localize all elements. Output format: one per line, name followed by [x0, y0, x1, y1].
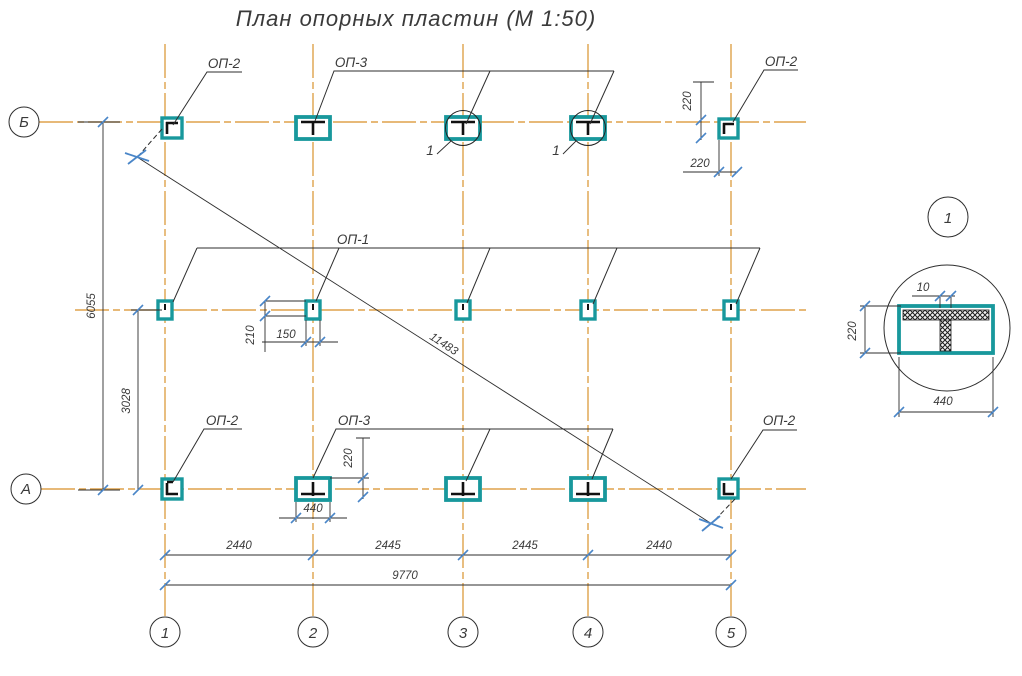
dim-span23: 2445 — [374, 540, 401, 552]
row-axis-a: А — [11, 474, 41, 504]
plate-b5 — [719, 119, 738, 138]
dim-corner-v: 220 — [682, 91, 694, 112]
callout-ref-plate3: 1 — [426, 141, 451, 158]
label-op2-top-left: ОП-2 — [208, 56, 241, 71]
row-axis-b: Б — [9, 107, 39, 137]
col-axis-bubbles: 1 2 3 4 5 — [150, 617, 746, 647]
leader-op2-top-right: ОП-2 — [733, 54, 798, 122]
leader-op2-bottom-left: ОП-2 — [173, 413, 242, 482]
label-op3-top: ОП-3 — [335, 55, 368, 70]
callout-ref-plate3-label: 1 — [426, 143, 434, 158]
dim-diagonal-label: 11483 — [427, 331, 460, 358]
col-axis-1-label: 1 — [161, 625, 169, 642]
plan-drawing: План опорных пластин (М 1:50) Б А 1 2 3 … — [0, 0, 1022, 676]
label-op2-top-right: ОП-2 — [765, 54, 798, 69]
grid-lines — [39, 44, 806, 616]
leader-op1-middle: ОП-1 — [173, 232, 760, 304]
col-axis-2-label: 2 — [308, 625, 318, 642]
dim-total-label: 9770 — [392, 570, 418, 582]
detail-view: 1 10 220 440 — [847, 197, 1010, 417]
col-axis-5-label: 5 — [727, 625, 736, 642]
dim-mid-plate-h: 210 — [245, 325, 257, 346]
dim-row-a-mid-label: 3028 — [121, 388, 133, 414]
dim-row-a-mid: 3028 — [121, 305, 162, 495]
leader-op3-top: ОП-3 — [315, 55, 614, 124]
dim-chain-spans: 2440 2445 2445 2440 — [160, 540, 736, 560]
label-op2-bottom-right: ОП-2 — [763, 413, 796, 428]
col-axis-4-label: 4 — [584, 625, 592, 642]
label-op3-bottom: ОП-3 — [338, 413, 371, 428]
detail-ref-label: 1 — [944, 210, 952, 227]
detail-web-section — [940, 320, 951, 351]
page-title: План опорных пластин (М 1:50) — [236, 6, 596, 31]
detail-dim-web: 10 — [917, 282, 930, 294]
row-axis-b-label: Б — [19, 114, 29, 131]
dim-bottom-plate-h: 220 — [343, 448, 355, 469]
detail-flange-section — [903, 310, 989, 320]
dim-diagonal: 11483 — [125, 129, 735, 531]
dim-span34: 2445 — [511, 540, 538, 552]
dim-total-width: 9770 — [160, 570, 736, 590]
plates-row-b — [162, 111, 738, 146]
label-op1: ОП-1 — [337, 232, 369, 247]
leader-op2-bottom-right: ОП-2 — [731, 413, 797, 479]
plate-b1 — [162, 118, 182, 138]
detail-dim-width: 440 — [933, 396, 953, 408]
callout-ref-plate4-label: 1 — [552, 143, 560, 158]
dim-corner-h: 220 — [689, 158, 710, 170]
dim-bottom-plate-w: 440 — [303, 503, 323, 515]
dim-rows-total-label: 6055 — [86, 293, 98, 319]
callout-ref-plate4: 1 — [552, 141, 576, 158]
leader-op2-top-left: ОП-2 — [173, 56, 242, 125]
dim-mid-plate-w: 150 — [276, 329, 296, 341]
row-axis-a-label: А — [20, 481, 31, 498]
drawing-canvas: План опорных пластин (М 1:50) Б А 1 2 3 … — [0, 0, 1022, 676]
dim-span45: 2440 — [645, 540, 672, 552]
col-axis-3-label: 3 — [459, 625, 468, 642]
label-op2-bottom-left: ОП-2 — [206, 413, 239, 428]
detail-dim-height: 220 — [847, 321, 859, 342]
dim-rows-total: 6055 — [78, 117, 120, 495]
dim-span12: 2440 — [225, 540, 252, 552]
dim-mid-plate: 210 150 — [245, 296, 338, 352]
